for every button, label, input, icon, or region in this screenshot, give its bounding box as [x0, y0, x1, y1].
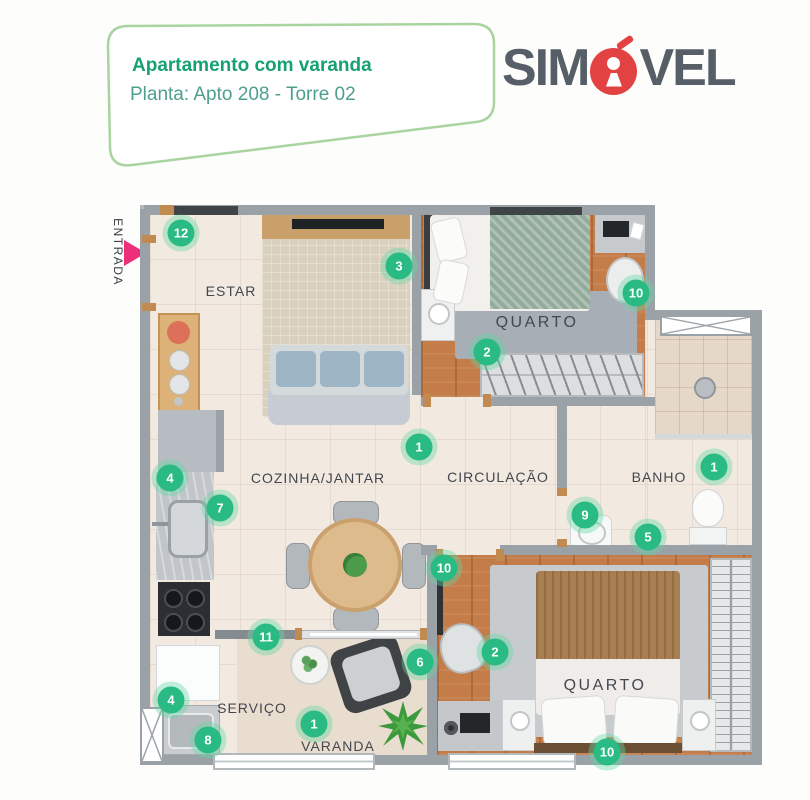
- wall-hall-bath: [557, 406, 567, 495]
- kitchen-sink: [168, 500, 208, 558]
- wall-bedroom1-bottom-b: [488, 397, 655, 406]
- badge-12: 12: [168, 220, 195, 247]
- door-jamb: [295, 628, 302, 640]
- wall-left: [140, 205, 150, 765]
- badge-9: 9: [572, 502, 599, 529]
- bed2-pillow: [612, 695, 679, 747]
- closet2: [710, 558, 752, 752]
- plate: [169, 374, 190, 395]
- door-jamb: [423, 394, 431, 407]
- bed2-pillow: [540, 695, 607, 747]
- toilet-tank: [689, 527, 727, 545]
- badge-1: 1: [406, 434, 433, 461]
- room-label-quarto2: QUARTO: [564, 677, 647, 695]
- badge-10: 10: [594, 739, 621, 766]
- lamp: [428, 303, 450, 325]
- burner: [164, 613, 183, 632]
- wall-right: [752, 310, 762, 765]
- lamp: [510, 711, 530, 731]
- entry-door-jamb: [142, 235, 156, 243]
- burner: [164, 589, 183, 608]
- plate: [169, 350, 190, 371]
- page: Apartamento com varanda Planta: Apto 208…: [0, 0, 810, 800]
- red-plate: [167, 321, 190, 344]
- service-window: [140, 707, 164, 763]
- door-jamb: [483, 394, 491, 407]
- record-player: [444, 721, 458, 735]
- room-label-servico: SERVIÇO: [217, 700, 287, 716]
- table-plant: [343, 553, 367, 577]
- door-jamb: [557, 539, 567, 547]
- room-label-banho: BANHO: [632, 469, 687, 485]
- floor-plan: ESTARQUARTOCOZINHA/JANTARCIRCULAÇÃOBANHO…: [140, 205, 762, 765]
- toilet-bowl: [692, 489, 724, 527]
- bed1-headboard-wall: [490, 207, 582, 215]
- badge-3: 3: [386, 253, 413, 280]
- room-label-cozinha: COZINHA/JANTAR: [251, 470, 385, 486]
- shower-window: [660, 315, 752, 336]
- door-jamb: [420, 628, 427, 640]
- sofa-cushion: [364, 351, 404, 387]
- entrance-label: ENTRADA: [109, 207, 125, 297]
- shower-head: [694, 377, 716, 399]
- faucet: [152, 522, 168, 526]
- bed1-blanket: [490, 215, 590, 309]
- sofa-cushion: [320, 351, 360, 387]
- badge-5: 5: [635, 524, 662, 551]
- laptop2: [460, 713, 490, 733]
- sliding-door-glass: [310, 633, 417, 636]
- balcony-railing-window: [213, 753, 375, 770]
- badge-2: 2: [482, 639, 509, 666]
- card-subtitle: Planta: Apto 208 - Torre 02: [130, 84, 356, 106]
- badge-10: 10: [431, 555, 458, 582]
- door-jamb: [496, 549, 504, 561]
- badge-8: 8: [195, 727, 222, 754]
- badge-7: 7: [207, 495, 234, 522]
- badge-11: 11: [253, 624, 280, 651]
- room-label-quarto1: QUARTO: [496, 314, 579, 332]
- logo: SIM VEL: [502, 38, 735, 98]
- laptop1: [603, 221, 629, 237]
- badge-1: 1: [701, 454, 728, 481]
- lamp: [690, 711, 710, 731]
- card-title: Apartamento com varanda: [132, 55, 372, 77]
- dining-chair: [286, 543, 310, 589]
- room-label-estar: ESTAR: [206, 283, 257, 299]
- fridge: [158, 410, 224, 472]
- burner: [186, 589, 205, 608]
- badge-2: 2: [474, 339, 501, 366]
- burner: [186, 613, 205, 632]
- clothes-rack1: [480, 353, 644, 397]
- entry-door-jamb: [142, 303, 156, 311]
- logo-text-before: SIM: [502, 38, 588, 98]
- badge-6: 6: [407, 649, 434, 676]
- badge-4: 4: [158, 687, 185, 714]
- shower-glass: [655, 434, 752, 439]
- wall-living-bedroom1: [412, 205, 421, 395]
- badge-4: 4: [157, 465, 184, 492]
- badge-1: 1: [301, 711, 328, 738]
- door-jamb: [557, 488, 567, 496]
- sofa-cushion: [276, 351, 316, 387]
- room-label-circulacao: CIRCULAÇÃO: [447, 469, 549, 485]
- keyhole-icon: [590, 48, 637, 95]
- side-table-plant: [300, 654, 318, 672]
- bedroom2-window: [448, 753, 576, 770]
- tv-screen: [292, 219, 384, 229]
- wall-hall-bottom-b: [500, 545, 762, 555]
- bed2-blanket: [536, 571, 680, 659]
- room-label-varanda: VARANDA: [301, 738, 375, 754]
- badge-10: 10: [623, 280, 650, 307]
- corner-trim: [160, 205, 174, 215]
- logo-text-after: VEL: [639, 38, 734, 98]
- shelf-knob: [174, 397, 183, 406]
